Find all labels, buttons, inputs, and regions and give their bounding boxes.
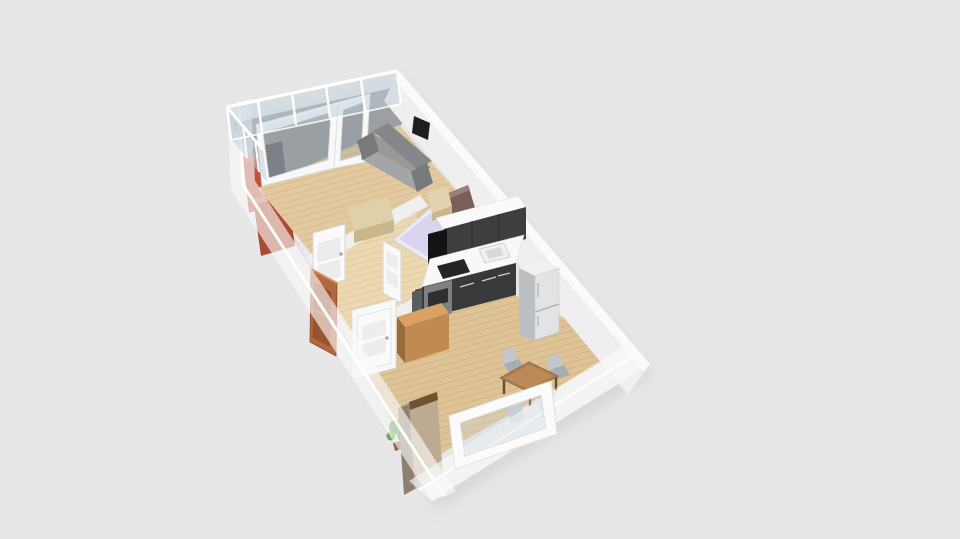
door-handle — [385, 336, 389, 340]
fridge — [519, 260, 559, 342]
floorplan-viewport[interactable] — [0, 0, 960, 539]
door-handle — [339, 252, 343, 256]
fridge-front — [535, 268, 559, 340]
interior-door-side — [383, 241, 401, 303]
fridge-side — [519, 268, 535, 342]
